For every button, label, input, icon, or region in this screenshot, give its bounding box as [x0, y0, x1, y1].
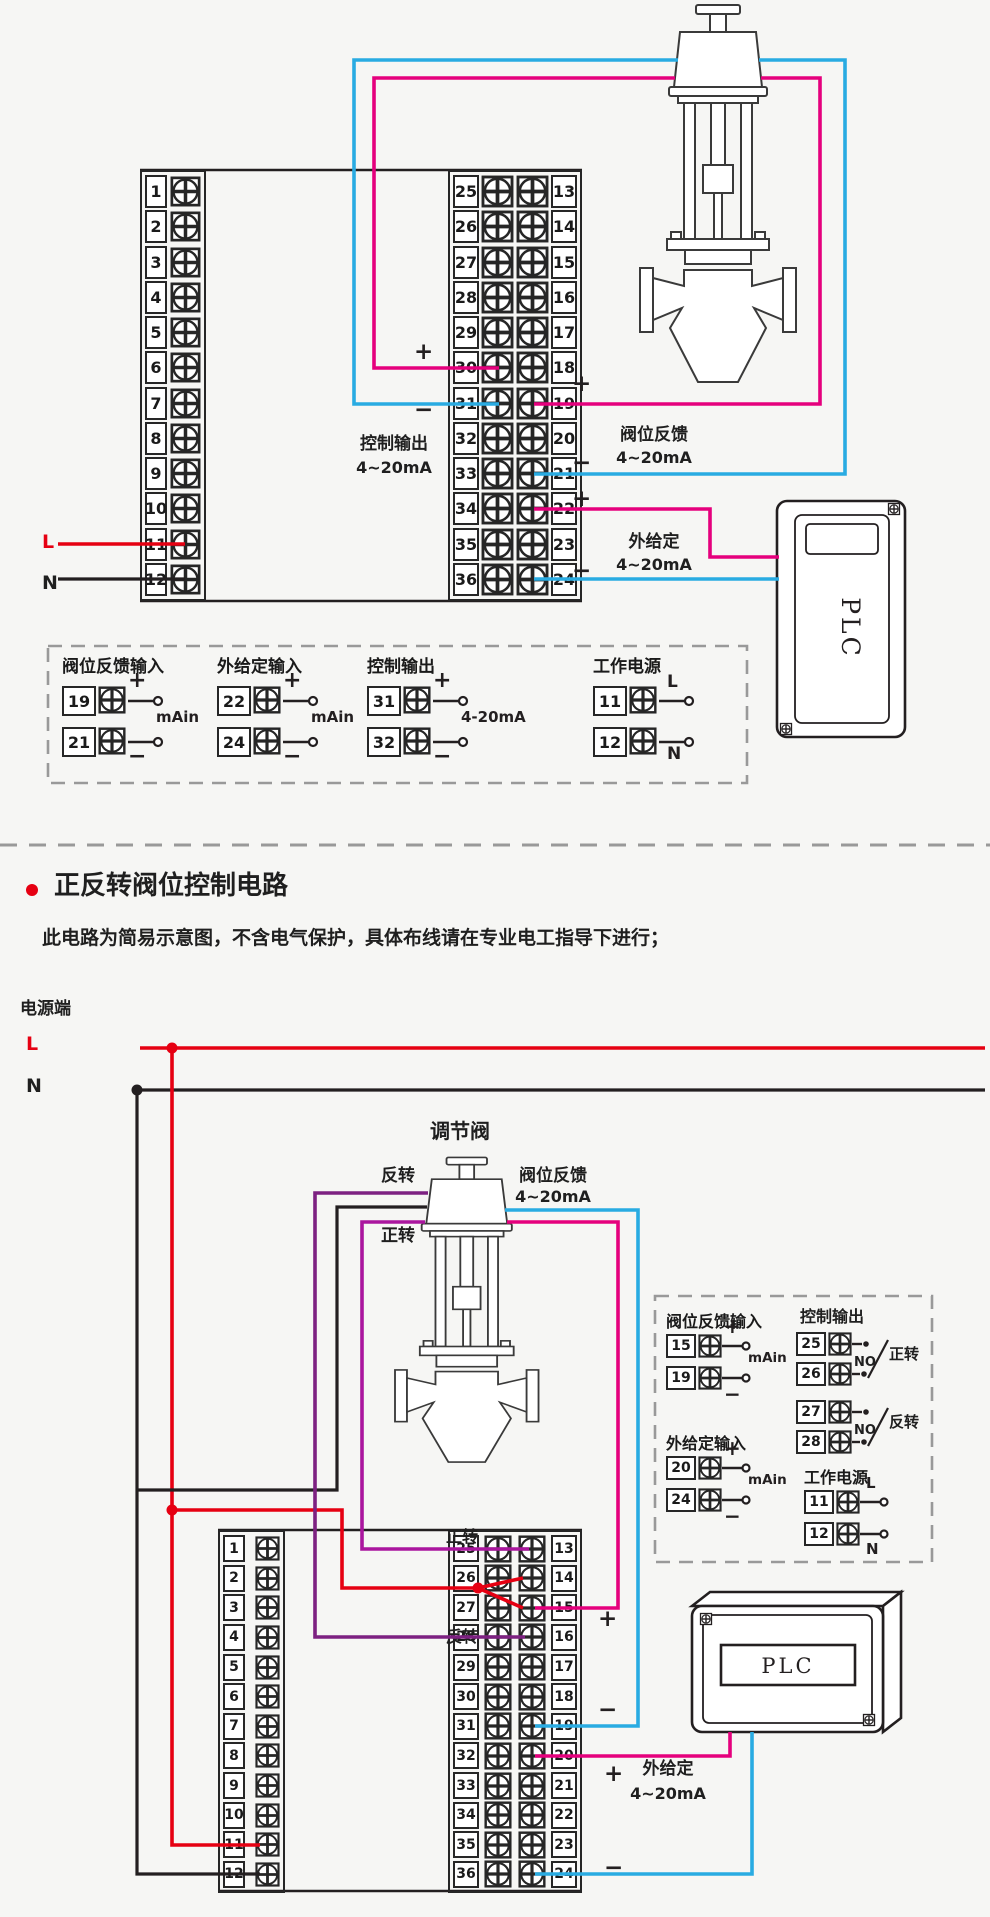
- screw-terminal: [484, 1860, 512, 1888]
- legend-terminal-row: 12: [804, 1522, 860, 1546]
- terminal-number: 15: [551, 246, 577, 279]
- terminal-row: 2614: [453, 210, 577, 243]
- terminal-row: 3422: [453, 1802, 577, 1829]
- screw-icon: [170, 529, 201, 560]
- screw-icon: [255, 1803, 280, 1828]
- ext-setpoint-label-1: 外给定: [608, 533, 700, 553]
- screw-terminal: [170, 458, 201, 489]
- screw-terminal: [481, 351, 514, 384]
- legend-annotation: mAin: [748, 1472, 787, 1488]
- section2-title: 正反转阀位控制电路: [54, 872, 288, 902]
- forward-label-block: 正转: [446, 1528, 478, 1546]
- terminal-number: 9: [145, 457, 167, 490]
- polarity-label: +: [433, 670, 451, 692]
- minus-sign: −: [598, 1699, 617, 1722]
- legend-group-title: 工作电源: [593, 652, 661, 677]
- valve-feedback-range-2: 4~20mA: [514, 1188, 592, 1206]
- legend-terminal-row: 22: [217, 686, 281, 716]
- screw-terminal: [518, 1831, 546, 1859]
- control-valve-1: [640, 5, 796, 382]
- terminal-row: 9: [145, 457, 201, 490]
- screw-terminal: [516, 316, 549, 349]
- legend-terminal-row: 32: [367, 727, 431, 757]
- legend-terminal-number: 12: [593, 727, 627, 757]
- screw-terminal: [484, 1594, 512, 1622]
- screw-icon: [484, 1535, 512, 1563]
- screw-icon: [484, 1564, 512, 1592]
- screw-terminal: [518, 1535, 546, 1563]
- screw-icon: [255, 1566, 280, 1591]
- screw-icon: [170, 423, 201, 454]
- screw-icon: [836, 1522, 860, 1546]
- screw-terminal: [516, 210, 549, 243]
- plc-module-2: PLC: [692, 1592, 901, 1732]
- legend-terminal-row: 27: [796, 1400, 852, 1424]
- screw-terminal: [170, 247, 201, 278]
- screw-terminal: [255, 1595, 280, 1620]
- polarity-label: +: [724, 1316, 741, 1336]
- screw-terminal: [516, 175, 549, 208]
- screw-icon: [698, 1488, 722, 1512]
- no-contact-label: NO: [854, 1424, 876, 1439]
- terminal-number: 14: [551, 1565, 577, 1592]
- screw-terminal: [255, 1655, 280, 1680]
- legend-terminal-row: 21: [62, 727, 126, 757]
- power-N-label-2: N: [26, 1076, 42, 1098]
- terminal-row: 3220: [453, 422, 577, 455]
- screw-terminal: [484, 1564, 512, 1592]
- screw-terminal: [255, 1684, 280, 1709]
- terminal-row: 3422: [453, 492, 577, 525]
- screw-icon: [255, 1536, 280, 1561]
- screw-icon: [516, 351, 549, 384]
- valve-feedback-label-2: 阀位反馈: [514, 1167, 592, 1187]
- screw-icon: [255, 1625, 280, 1650]
- screw-terminal: [255, 1625, 280, 1650]
- legend-terminal-number: 31: [367, 686, 401, 716]
- terminal-number: 6: [223, 1683, 245, 1710]
- terminal-number: 27: [453, 246, 479, 279]
- legend-group: 工作电源11L12N: [593, 652, 743, 782]
- terminal-row: 10: [145, 492, 201, 525]
- screw-icon: [170, 388, 201, 419]
- screw-terminal: [170, 282, 201, 313]
- screw-terminal: [516, 246, 549, 279]
- terminal-row: 12: [145, 563, 201, 596]
- screw-icon: [484, 1594, 512, 1622]
- screw-icon: [170, 352, 201, 383]
- screw-icon: [255, 1595, 280, 1620]
- terminal-number: 10: [223, 1802, 245, 1829]
- screw-icon: [516, 246, 549, 279]
- terminal-number: 36: [453, 563, 479, 596]
- screw-icon: [484, 1772, 512, 1800]
- ext-setpoint-range-2: 4~20mA: [628, 1785, 708, 1803]
- screw-terminal: [481, 175, 514, 208]
- terminal-row: 2917: [453, 316, 577, 349]
- terminal-row: 4: [145, 281, 201, 314]
- screw-icon: [516, 422, 549, 455]
- legend-terminal-number: 11: [804, 1490, 834, 1514]
- terminal-row: 6: [145, 351, 201, 384]
- screw-terminal: [698, 1366, 722, 1390]
- terminal-row: 2: [145, 210, 201, 243]
- terminal-row: 5: [223, 1654, 280, 1681]
- terminal-block-1-left: 123456789101112: [140, 170, 206, 601]
- screw-terminal: [255, 1714, 280, 1739]
- screw-terminal: [484, 1535, 512, 1563]
- screw-terminal: [484, 1683, 512, 1711]
- screw-terminal: [170, 211, 201, 242]
- minus-sign: −: [572, 560, 591, 583]
- plus-sign: +: [604, 1763, 623, 1786]
- terminal-number: 12: [223, 1861, 245, 1888]
- terminal-row: 2: [223, 1565, 280, 1592]
- terminal-row: 3624: [453, 1861, 577, 1888]
- screw-terminal: [516, 387, 549, 420]
- terminal-row: 6: [223, 1683, 280, 1710]
- screw-icon: [255, 1832, 280, 1857]
- no-contact-label: NO: [854, 1356, 876, 1371]
- terminal-row: 11: [145, 528, 201, 561]
- terminal-row: 2513: [453, 175, 577, 208]
- terminal-number: 14: [551, 210, 577, 243]
- forward-label-valve: 正转: [381, 1227, 415, 1247]
- polarity-label: +: [128, 670, 146, 692]
- legend-terminal-row: 15: [666, 1334, 722, 1358]
- legend-group-title: 控制输出: [800, 1308, 864, 1326]
- screw-terminal: [516, 528, 549, 561]
- screw-icon: [518, 1683, 546, 1711]
- legend-terminal-number: 32: [367, 727, 401, 757]
- screw-icon: [518, 1653, 546, 1681]
- terminal-number: 35: [453, 1831, 479, 1858]
- terminal-number: 31: [453, 387, 479, 420]
- screw-terminal: [481, 246, 514, 279]
- screw-terminal: [255, 1832, 280, 1857]
- terminal-number: 10: [145, 492, 167, 525]
- terminal-row: 1: [145, 175, 201, 208]
- terminal-row: 3523: [453, 1831, 577, 1858]
- screw-icon: [481, 351, 514, 384]
- screw-terminal: [518, 1683, 546, 1711]
- plc-label-1: PLC: [836, 597, 865, 659]
- legend-terminal-row: 24: [217, 727, 281, 757]
- terminal-block-2-left: 123456789101112: [218, 1530, 285, 1893]
- power-terminal-label: 电源端: [20, 1000, 71, 1020]
- screw-terminal: [516, 492, 549, 525]
- legend-group: 阀位反馈输入15+19−mAin: [666, 1308, 806, 1408]
- legend-terminal-number: 12: [804, 1522, 834, 1546]
- terminal-number: 5: [223, 1654, 245, 1681]
- terminal-row: 2816: [453, 281, 577, 314]
- legend-terminal-number: 26: [796, 1362, 826, 1386]
- legend-terminal-row: 25: [796, 1332, 852, 1356]
- power-N-label-1: N: [42, 573, 58, 595]
- screw-terminal: [481, 457, 514, 490]
- terminal-row: 3: [145, 246, 201, 279]
- terminal-row: 4: [223, 1624, 280, 1651]
- terminal-number: 27: [453, 1594, 479, 1621]
- legend-annotation: mAin: [311, 708, 354, 726]
- terminal-row: 8: [145, 422, 201, 455]
- screw-icon: [518, 1564, 546, 1592]
- legend-terminal-number: 11: [593, 686, 627, 716]
- screw-terminal: [253, 727, 281, 755]
- screw-terminal: [836, 1522, 860, 1546]
- screw-terminal: [836, 1490, 860, 1514]
- terminal-number: 5: [145, 316, 167, 349]
- plus-sign: +: [414, 341, 433, 364]
- terminal-row: 10: [223, 1802, 280, 1829]
- screw-icon: [516, 457, 549, 490]
- screw-terminal: [518, 1653, 546, 1681]
- terminal-number: 13: [551, 175, 577, 208]
- terminal-number: 6: [145, 351, 167, 384]
- terminal-block-2-middle: 2513261427152816291730183119322033213422…: [448, 1530, 582, 1893]
- polarity-label: L: [667, 674, 678, 691]
- screw-terminal: [828, 1362, 852, 1386]
- polarity-label: L: [866, 1476, 876, 1491]
- screw-terminal: [253, 686, 281, 714]
- power-L-label-2: L: [26, 1034, 38, 1056]
- terminal-number: 7: [145, 387, 167, 420]
- screw-terminal: [403, 686, 431, 714]
- legend-group-title: 阀位反馈输入: [666, 1308, 762, 1332]
- screw-icon: [481, 175, 514, 208]
- terminal-number: 34: [453, 492, 479, 525]
- legend-group-title: 阀位反馈输入: [62, 652, 164, 677]
- screw-terminal: [484, 1712, 512, 1740]
- screw-icon: [481, 563, 514, 596]
- terminal-row: 3321: [453, 1772, 577, 1799]
- screw-icon: [98, 727, 126, 755]
- screw-icon: [698, 1334, 722, 1358]
- terminal-number: 21: [551, 1772, 577, 1799]
- screw-terminal: [484, 1801, 512, 1829]
- screw-icon: [170, 282, 201, 313]
- screw-icon: [484, 1712, 512, 1740]
- terminal-number: 33: [453, 1772, 479, 1799]
- screw-terminal: [481, 528, 514, 561]
- terminal-number: 1: [223, 1535, 245, 1562]
- screw-terminal: [484, 1653, 512, 1681]
- screw-terminal: [484, 1831, 512, 1859]
- screw-terminal: [518, 1772, 546, 1800]
- terminal-number: 17: [551, 316, 577, 349]
- screw-icon: [698, 1456, 722, 1480]
- screw-icon: [98, 686, 126, 714]
- terminal-number: 29: [453, 316, 479, 349]
- screw-icon: [403, 686, 431, 714]
- terminal-number: 32: [453, 1742, 479, 1769]
- terminal-number: 2: [223, 1565, 245, 1592]
- legend-terminal-row: 20: [666, 1456, 722, 1480]
- screw-icon: [516, 563, 549, 596]
- screw-icon: [516, 528, 549, 561]
- polarity-label: +: [283, 670, 301, 692]
- screw-icon: [828, 1332, 852, 1356]
- polarity-label: −: [724, 1384, 741, 1404]
- ctrl-output-label-1: 控制输出: [348, 435, 440, 455]
- plc-label-2: PLC: [761, 1654, 814, 1678]
- terminal-number: 4: [145, 281, 167, 314]
- screw-icon: [516, 387, 549, 420]
- plus-sign: +: [572, 488, 591, 511]
- legend-terminal-row: 11: [804, 1490, 860, 1514]
- screw-icon: [253, 727, 281, 755]
- terminal-number: 11: [223, 1831, 245, 1858]
- legend-terminal-row: 31: [367, 686, 431, 716]
- screw-icon: [836, 1490, 860, 1514]
- ext-setpoint-range-1: 4~20mA: [608, 556, 700, 574]
- terminal-row: 3321: [453, 457, 577, 490]
- terminal-number: 3: [145, 246, 167, 279]
- terminal-number: 15: [551, 1594, 577, 1621]
- screw-icon: [481, 387, 514, 420]
- legend-annotation: 4-20mA: [461, 708, 526, 726]
- terminal-row: 8: [223, 1742, 280, 1769]
- ext-setpoint-label-2: 外给定: [628, 1760, 708, 1780]
- screw-icon: [255, 1743, 280, 1768]
- terminal-number: 8: [223, 1742, 245, 1769]
- terminal-row: 11: [223, 1831, 280, 1858]
- terminal-number: 18: [551, 1683, 577, 1710]
- screw-terminal: [629, 727, 657, 755]
- screw-icon: [516, 281, 549, 314]
- terminal-number: 7: [223, 1713, 245, 1740]
- terminal-row: 3220: [453, 1742, 577, 1769]
- screw-terminal: [516, 351, 549, 384]
- screw-icon: [828, 1400, 852, 1424]
- terminal-number: 26: [453, 1565, 479, 1592]
- ctrl-output-range-1: 4~20mA: [348, 459, 440, 477]
- screw-icon: [255, 1684, 280, 1709]
- screw-terminal: [403, 727, 431, 755]
- section2-subtitle: 此电路为简易示意图，不含电气保护，具体布线请在专业电工指导下进行；: [42, 928, 669, 950]
- screw-icon: [516, 492, 549, 525]
- terminal-number: 23: [551, 528, 577, 561]
- screw-terminal: [170, 176, 201, 207]
- screw-icon: [255, 1655, 280, 1680]
- terminal-number: 31: [453, 1713, 479, 1740]
- terminal-number: 12: [145, 563, 167, 596]
- screw-terminal: [828, 1430, 852, 1454]
- screw-terminal: [481, 492, 514, 525]
- terminal-row: 12: [223, 1861, 280, 1888]
- valve-label-2: 调节阀: [430, 1120, 490, 1143]
- screw-terminal: [481, 281, 514, 314]
- screw-terminal: [484, 1742, 512, 1770]
- terminal-row: 7: [223, 1713, 280, 1740]
- screw-icon: [516, 316, 549, 349]
- screw-terminal: [170, 564, 201, 595]
- polarity-label: −: [433, 746, 451, 768]
- terminal-row: 3018: [453, 351, 577, 384]
- terminal-number: 11: [145, 528, 167, 561]
- screw-icon: [698, 1366, 722, 1390]
- screw-icon: [481, 528, 514, 561]
- legend-terminal-number: 24: [666, 1488, 696, 1512]
- screw-icon: [484, 1831, 512, 1859]
- legend-group: 外给定输入22+24−mAin: [217, 652, 367, 782]
- screw-terminal: [484, 1772, 512, 1800]
- screw-terminal: [484, 1623, 512, 1651]
- screw-icon: [255, 1862, 280, 1887]
- screw-terminal: [255, 1743, 280, 1768]
- screw-icon: [170, 247, 201, 278]
- terminal-row: 2715: [453, 246, 577, 279]
- screw-icon: [484, 1653, 512, 1681]
- legend-terminal-number: 19: [62, 686, 96, 716]
- minus-sign: −: [604, 1857, 623, 1880]
- terminal-row: 3523: [453, 528, 577, 561]
- screw-terminal: [698, 1488, 722, 1512]
- legend-terminal-number: 21: [62, 727, 96, 757]
- legend-terminal-row: 12: [593, 727, 657, 757]
- screw-terminal: [518, 1801, 546, 1829]
- terminal-number: 19: [551, 1713, 577, 1740]
- terminal-number: 28: [453, 281, 479, 314]
- screw-terminal: [170, 493, 201, 524]
- terminal-row: 3018: [453, 1683, 577, 1710]
- screw-terminal: [255, 1803, 280, 1828]
- screw-terminal: [518, 1623, 546, 1651]
- screw-terminal: [255, 1566, 280, 1591]
- screw-terminal: [698, 1456, 722, 1480]
- terminal-number: 34: [453, 1802, 479, 1829]
- screw-icon: [255, 1714, 280, 1739]
- screw-terminal: [698, 1334, 722, 1358]
- terminal-row: 7: [145, 387, 201, 420]
- minus-sign: −: [414, 399, 433, 422]
- legend-terminal-row: 28: [796, 1430, 852, 1454]
- legend-terminal-row: 26: [796, 1362, 852, 1386]
- terminal-block-1-middle: 2513261427152816291730183119322033213422…: [448, 170, 582, 601]
- screw-icon: [518, 1860, 546, 1888]
- terminal-number: 36: [453, 1861, 479, 1888]
- screw-icon: [170, 317, 201, 348]
- screw-terminal: [481, 563, 514, 596]
- terminal-number: 29: [453, 1654, 479, 1681]
- terminal-row: 2917: [453, 1654, 577, 1681]
- relay-direction-label: 正转: [889, 1346, 919, 1363]
- legend-terminal-number: 15: [666, 1334, 696, 1358]
- screw-terminal: [629, 686, 657, 714]
- screw-terminal: [170, 423, 201, 454]
- screw-terminal: [828, 1400, 852, 1424]
- screw-icon: [403, 727, 431, 755]
- legend-annotation: mAin: [156, 708, 199, 726]
- plus-sign: +: [598, 1608, 617, 1631]
- terminal-row: 2614: [453, 1565, 577, 1592]
- screw-icon: [253, 686, 281, 714]
- terminal-number: 2: [145, 210, 167, 243]
- screw-terminal: [170, 352, 201, 383]
- terminal-number: 13: [551, 1535, 577, 1562]
- terminal-number: 33: [453, 457, 479, 490]
- screw-terminal: [518, 1742, 546, 1770]
- polarity-label: −: [283, 746, 301, 768]
- legend-terminal-number: 22: [217, 686, 251, 716]
- screw-icon: [481, 492, 514, 525]
- valve-feedback-range-1: 4~20mA: [608, 449, 700, 467]
- screw-icon: [518, 1772, 546, 1800]
- polarity-label: N: [667, 746, 681, 763]
- legend-group: 阀位反馈输入19+21−mAin: [62, 652, 212, 782]
- legend-group: 工作电源11L12N: [804, 1464, 944, 1564]
- legend-group: 控制输出31+32−4-20mA: [367, 652, 517, 782]
